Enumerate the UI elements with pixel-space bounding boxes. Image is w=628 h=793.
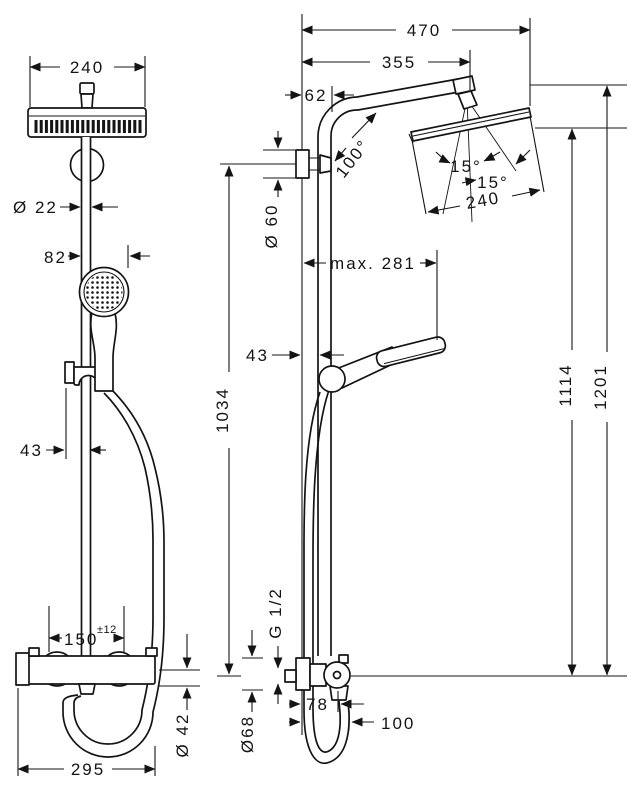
dim-label: Ø68: [238, 715, 257, 753]
dim-label: 150: [64, 630, 98, 649]
dim-bracket-depth-front: 43: [20, 388, 106, 460]
dim-label: 100: [381, 714, 415, 733]
holder-knob: [319, 366, 345, 392]
side-view: 470 355 62 100° 15° 15: [213, 14, 627, 763]
thermostat-valve-side: [285, 655, 350, 700]
dim-bar-wall-clearance: 43: [246, 346, 344, 365]
dim-label: 295: [71, 760, 105, 779]
wall-bracket-side: [296, 150, 331, 178]
technical-drawing: 240 Ø 22 82 43 150 ±12: [0, 0, 628, 788]
hose-outlet-fitting: [79, 684, 95, 694]
dim-arm-angle: 100°: [332, 113, 376, 181]
valve-knob-side: [324, 662, 350, 688]
dim-label: Ø 22: [13, 198, 58, 217]
dim-tolerance-label: ±12: [97, 624, 117, 636]
dim-label: 240: [464, 188, 501, 213]
overhead-shower-front: [28, 83, 146, 137]
dim-label: Ø 42: [173, 713, 192, 758]
dim-label: 62: [305, 86, 328, 105]
dim-thread-size: G 1/2: [266, 587, 285, 704]
dim-valve-knob-depth: 78: [289, 691, 364, 714]
dim-escutcheon-diameter: Ø68: [238, 630, 263, 753]
dim-label: 470: [407, 21, 441, 40]
dim-max-handshower-reach: max. 281: [304, 250, 437, 340]
dim-wall-bracket-diameter: Ø 60: [262, 131, 296, 248]
dim-label: 1034: [213, 387, 232, 433]
dim-pipe-diameter: Ø 22: [13, 198, 118, 217]
dim-label: 240: [70, 58, 104, 77]
dim-label: G 1/2: [266, 587, 285, 639]
dim-valve-body-diameter: Ø 42: [159, 634, 200, 757]
dim-label: 78: [306, 695, 329, 714]
dim-label: max. 281: [330, 254, 416, 273]
spray-face: [86, 274, 123, 311]
hand-shower-side: [319, 336, 447, 392]
dim-height-total: 1201: [530, 85, 627, 675]
dim-label: 355: [382, 53, 416, 72]
dim-overall-width: 295: [18, 688, 155, 779]
dim-height-to-head: 1114: [535, 128, 627, 675]
dim-label: 82: [44, 248, 67, 267]
shower-hose-front: [63, 389, 164, 757]
supply-stub: [285, 670, 296, 682]
dim-label: 43: [20, 441, 43, 460]
dim-label: 43: [246, 346, 269, 365]
front-view: 240 Ø 22 82 43 150 ±12: [13, 56, 200, 779]
dim-hand-shower-offset: 82: [44, 245, 150, 268]
dim-label: 100°: [332, 136, 374, 182]
dim-label: 1114: [556, 363, 575, 406]
dim-label: 1201: [591, 364, 610, 410]
dim-label: Ø 60: [262, 204, 281, 249]
shower-dimensional-drawing-page: 240 Ø 22 82 43 150 ±12: [0, 0, 628, 788]
shower-bar-front: [82, 137, 91, 656]
dim-projection-arm: 355: [302, 50, 470, 90]
